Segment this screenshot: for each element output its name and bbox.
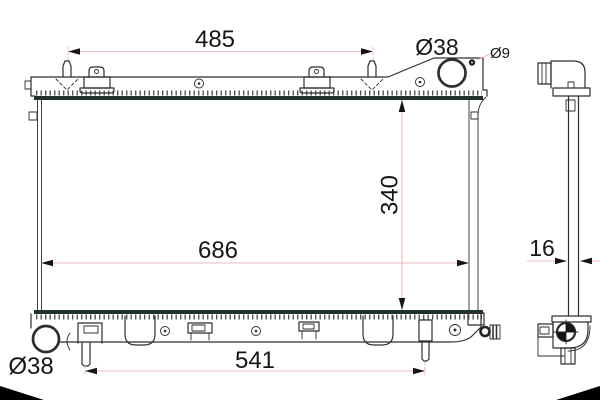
side-bottom-bracket: [538, 316, 591, 364]
filler-neck-circle: [439, 60, 466, 87]
ribbed-fitting: [490, 325, 500, 339]
outlet-pipe-circle: [33, 326, 59, 352]
dim-core-width: 686: [41, 237, 469, 266]
drain-tab-right: [363, 316, 393, 345]
dim-filler-neck: Ø38: [415, 34, 458, 60]
dim-filler-neck-label: Ø38: [415, 34, 458, 60]
bottom-bracket-pin-left: [78, 323, 102, 366]
bottom-rivet-3: [450, 325, 461, 336]
dim-core-width-label: 686: [198, 237, 238, 264]
dim-outlet: Ø38: [8, 353, 53, 380]
corner-mark-bottom-right: [556, 386, 600, 400]
notch-left: [56, 79, 78, 90]
corner-mark-bottom-left: [0, 386, 44, 400]
top-bracket-left: [80, 67, 114, 93]
dim-core-height: 340: [377, 100, 406, 310]
mount-pin-left: [63, 61, 71, 77]
drain-tab-left: [125, 316, 155, 345]
front-view: [25, 58, 500, 366]
dim-bottom-mount-span-label: 541: [235, 347, 275, 374]
bottom-bracket-pin-right: [419, 320, 432, 361]
tank-rivet-right: [416, 78, 425, 87]
dim-core-height-label: 340: [377, 175, 404, 215]
dim-core-thickness: 16: [527, 235, 600, 264]
mount-pin-right: [368, 61, 376, 77]
dim-bottom-mount-span: 541: [85, 347, 425, 376]
core-top-edge: [34, 96, 483, 100]
notch-right: [361, 79, 383, 90]
end-port-ring: [481, 327, 490, 336]
tank-rivet-left: [195, 79, 204, 88]
bottom-rivet-1: [161, 327, 170, 336]
dim-top-mount-span: 485: [68, 26, 373, 61]
dim-core-thickness-label: 16: [529, 235, 555, 261]
top-bracket-right: [300, 67, 334, 93]
dim-pin-hole: Ø9: [477, 45, 510, 62]
bottom-rivet-2: [252, 327, 261, 336]
drawing-svg: 485 Ø38 Ø9 340 686 16: [0, 0, 600, 400]
radiator-technical-drawing: 485 Ø38 Ø9 340 686 16: [0, 0, 600, 400]
channel-clip-right: [471, 112, 478, 119]
dim-top-mount-span-label: 485: [195, 26, 235, 53]
dim-pin-hole-label: Ø9: [490, 45, 510, 62]
side-view: [538, 61, 591, 364]
side-core: [566, 96, 579, 316]
channel-clip-left: [29, 112, 37, 120]
dim-outlet-label: Ø38: [8, 353, 53, 380]
top-tank: [25, 58, 487, 100]
side-top-elbow: [538, 61, 590, 96]
bottom-bracket-mid: [188, 323, 212, 340]
core-bottom-edge: [34, 310, 483, 314]
top-tank-left-tab: [25, 81, 31, 89]
core: [29, 97, 486, 310]
pipe-section-symbol: [554, 320, 578, 344]
pin-hole-bolt: [469, 59, 475, 65]
side-channel-right: [478, 97, 486, 310]
bottom-bracket-3: [299, 322, 319, 339]
